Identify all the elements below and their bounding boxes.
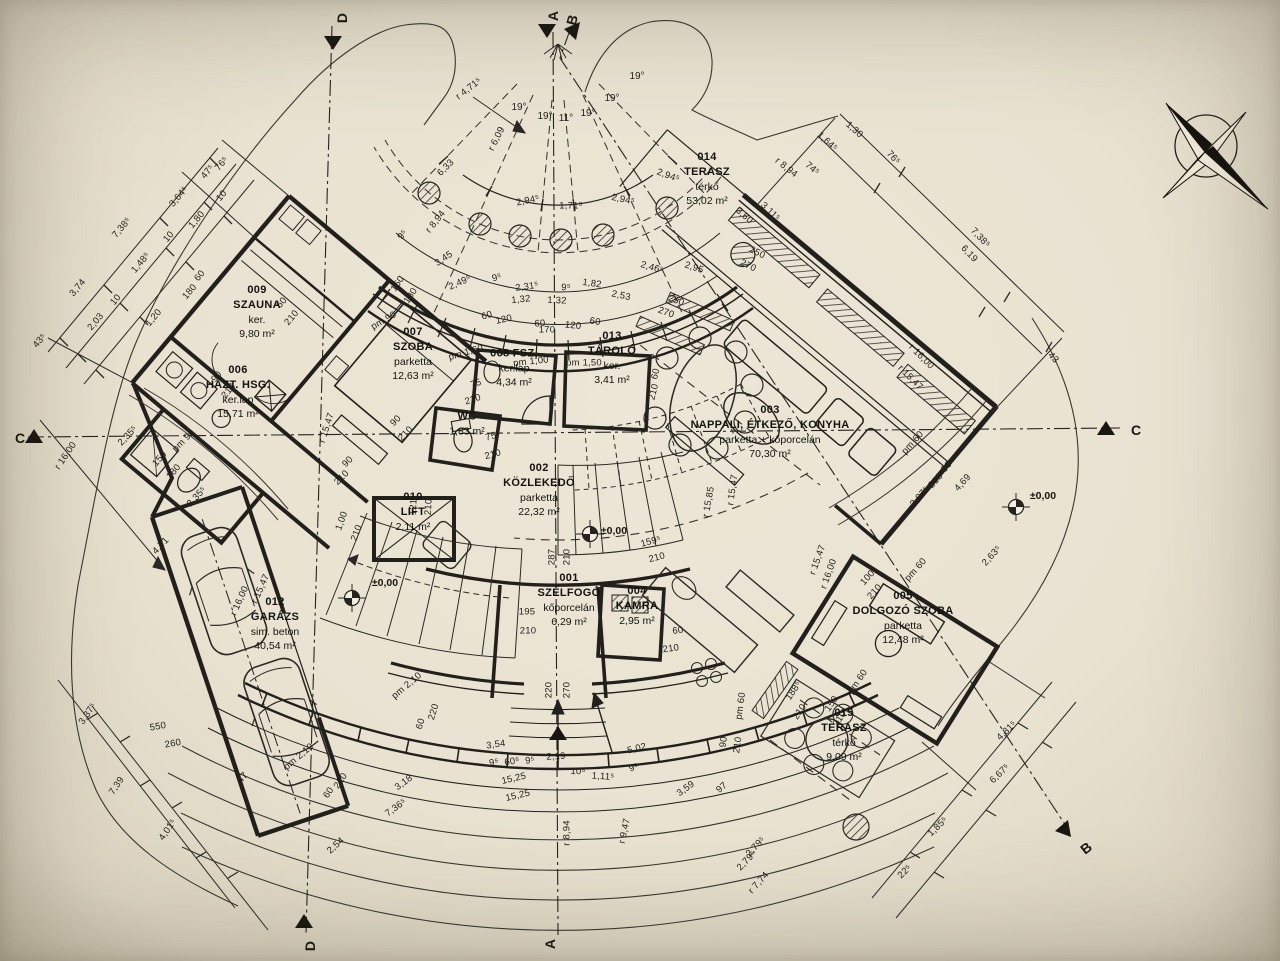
dim-label: 121⁵ — [409, 494, 420, 515]
dim-label: 15,25 — [501, 772, 527, 787]
room-label: 005DOLGOZÓ SZOBAparketta12,48 m² — [852, 589, 953, 647]
room-label-line: parketta — [503, 491, 575, 505]
section-letter: D — [302, 941, 318, 951]
room-label-line: 12,48 m² — [852, 633, 953, 647]
room-label-line: ker. — [233, 313, 281, 327]
angle-label: 11° — [559, 114, 573, 124]
room-label-line: 007 — [392, 325, 433, 340]
dim-label: 210 — [732, 736, 744, 754]
dim-label: 220 — [544, 682, 554, 698]
dim-label: 1,80 — [187, 210, 207, 231]
dim-label: 60 — [193, 269, 207, 284]
room-label: 001SZÉLFOGÓkőporcelán6,29 m² — [538, 571, 601, 629]
dim-label: 250 — [748, 245, 767, 261]
dim-label: 60 — [650, 368, 662, 381]
dim-label: 210 — [333, 469, 351, 487]
dim-label: 2,54 — [326, 836, 347, 856]
dim-label: 2,63⁵ — [981, 544, 1004, 568]
dim-label: r 7,74 — [747, 870, 771, 895]
dim-label: pm 2,10 — [282, 742, 315, 772]
dim-label: 2,49⁵ — [447, 274, 472, 292]
room-label-line: 70,30 m² — [691, 447, 850, 461]
dim-label: 2,94⁵ — [516, 194, 541, 208]
dim-label: r 15,47 — [726, 474, 740, 506]
dim-label: 210 — [484, 448, 502, 461]
room-label-line: SZOBA — [392, 340, 433, 355]
room-label-line: 004 — [616, 584, 658, 599]
section-letter: B — [563, 13, 581, 27]
room-label-line: TERASZ — [684, 165, 730, 180]
dim-label: 220 — [332, 772, 349, 791]
dim-label: 6,67⁵ — [988, 762, 1011, 785]
room-label-line: GARÁZS — [251, 610, 299, 625]
dim-label: 9⁵ — [489, 758, 500, 769]
room-label-line: 22,32 m² — [503, 505, 575, 519]
dim-label: 7,36⁵ — [384, 797, 409, 818]
dim-label: 180 — [181, 283, 199, 302]
dim-label: 210 — [424, 498, 435, 515]
dim-label: pm 60 — [734, 692, 747, 720]
dim-label: r 8,94 — [773, 156, 799, 179]
room-label-line: KÖZLEKEDŐ — [503, 476, 575, 491]
dim-label: 2,03 — [86, 312, 106, 333]
dim-label: 15,25 — [505, 789, 531, 804]
dim-label: 10 — [215, 189, 229, 204]
dim-label: 76⁵ — [884, 149, 901, 167]
room-label-line: 2,95 m² — [616, 614, 658, 628]
dim-label: 7,39 — [108, 775, 127, 796]
dim-label: 1,00 — [334, 510, 350, 531]
dim-label: 1,82 — [582, 278, 602, 290]
dim-label: 75 — [469, 378, 482, 390]
dim-label: 60 — [415, 717, 427, 730]
dim-label: 270 — [562, 682, 572, 698]
dim-label: r 8,94 — [562, 820, 572, 846]
room-label-line: 6,29 m² — [538, 615, 601, 629]
dim-label: 5,02 — [626, 742, 647, 756]
dim-label: 4,01⁵ — [158, 818, 179, 843]
section-letter: C — [15, 430, 25, 446]
room-label-line: KAMRA — [616, 599, 658, 614]
dim-label: pm 60 — [903, 557, 928, 584]
dim-label: 1,30 — [844, 120, 865, 140]
dim-label: 270 — [739, 258, 758, 274]
room-label-line: 009 — [233, 283, 281, 298]
dim-label: 9⁵ — [396, 228, 409, 241]
angle-label: 19° — [580, 109, 595, 119]
room-label: 004KAMRA2,95 m² — [616, 584, 658, 628]
dim-label: 270 — [657, 306, 676, 321]
dim-label: pm 1,50 — [566, 358, 602, 368]
dim-label: 4,69 — [953, 473, 973, 494]
dim-label: 1,32 — [547, 296, 567, 306]
dim-label: 2,35⁵ — [186, 485, 209, 509]
dim-label: 60⁵ — [504, 756, 520, 768]
room-label-line: 1,83 m² — [449, 424, 485, 438]
dim-label: 60 — [589, 316, 601, 327]
room-label-line: 3,41 m² — [588, 373, 636, 387]
room-label: 002KÖZLEKEDŐparketta22,32 m² — [503, 461, 575, 519]
room-label-line: SZÉLFOGÓ — [538, 586, 601, 601]
dim-label: 210 — [464, 393, 483, 407]
dim-label: 180 — [402, 287, 419, 306]
dim-label: pm 60 — [900, 430, 925, 457]
dim-label: r 16,00 — [229, 585, 250, 617]
dim-label: pm 1,60 — [448, 344, 485, 363]
dim-label: r 16,00 — [907, 343, 936, 372]
dim-label: 210 — [791, 703, 808, 722]
room-label-line: 15,71 m² — [206, 407, 270, 421]
room-label-line: 40,54 m² — [251, 639, 299, 653]
dim-label: 2,19 — [546, 752, 566, 762]
dim-label: 3,54 — [486, 739, 506, 751]
dim-label: 120 — [564, 320, 581, 331]
dim-label: 159⁵ — [640, 535, 662, 550]
room-label: WC1,83 m² — [449, 409, 485, 438]
dim-label: 195 — [519, 607, 535, 617]
dim-label: 170 — [539, 325, 555, 335]
room-label-line: térkő — [684, 180, 730, 194]
dim-label: 2,79⁵ — [735, 849, 758, 872]
room-label-line: SZAUNA — [233, 298, 281, 313]
dim-label: 97 — [715, 781, 730, 795]
dim-label: 210 — [350, 524, 365, 543]
room-label-line: 014 — [684, 150, 730, 165]
dim-label: r 8,94 — [424, 209, 447, 235]
dim-label: 7,38⁵ — [969, 226, 992, 250]
dim-label: 260 — [164, 738, 182, 750]
room-label-line: ker.lap — [206, 393, 270, 407]
dim-label: 1,64⁵ — [815, 131, 839, 154]
dim-label: 43⁵ — [32, 332, 49, 350]
dim-label: 22⁵ — [896, 863, 913, 880]
room-label-line: parketta — [392, 355, 433, 369]
angle-label: 19° — [537, 112, 552, 122]
dim-label: 9⁵ — [525, 756, 536, 766]
floor-plan-sheet: 009SZAUNAker.9,80 m²006HÁZT. HSG.ker.lap… — [0, 0, 1280, 961]
dim-label: 210 — [397, 425, 415, 443]
dim-label: 90 — [719, 736, 730, 748]
dim-label: 210 — [520, 626, 536, 636]
labels-layer: 009SZAUNAker.9,80 m²006HÁZT. HSG.ker.lap… — [0, 0, 1280, 961]
dim-label: 2,35⁵ — [117, 424, 140, 448]
dim-label: 150 — [151, 450, 169, 469]
dim-label: 3,11⁵ — [759, 201, 782, 224]
room-label-line: parketta — [852, 619, 953, 633]
dim-label: 90 — [940, 460, 954, 475]
room-label-line: 53,02 m² — [684, 194, 730, 208]
dim-label: 1,85⁵ — [926, 815, 949, 838]
dim-label: 2,46⁵ — [639, 260, 664, 276]
dim-label: 1,71⁵ — [559, 201, 582, 211]
dim-label: 3,60 — [734, 206, 755, 226]
dim-label: 2,95 — [683, 261, 704, 276]
dim-label: 287 — [547, 549, 557, 565]
dim-label: 210 — [927, 472, 945, 491]
elevation-label: ±0,00 — [601, 525, 627, 537]
dim-label: 60 — [480, 310, 493, 322]
angle-label: 19° — [629, 72, 644, 82]
dim-label: 2,31⁵ — [515, 281, 540, 294]
room-label-line: 003 — [691, 403, 850, 418]
dim-label: 1,48⁵ — [130, 251, 152, 275]
room-label-line: NAPPALI, ÉTKEZŐ, KONYHA — [691, 418, 850, 433]
room-label-line: 9,09 m² — [821, 750, 867, 764]
dim-label: 3,18 — [393, 773, 414, 792]
room-label-line: WC — [449, 409, 485, 424]
room-label-line: sim. beton — [251, 625, 299, 639]
dim-label: 188⁵ — [784, 680, 803, 702]
section-letter: D — [334, 13, 350, 23]
dim-label: 2,07⁵ — [909, 485, 932, 509]
dim-label: 9⁵ — [628, 762, 640, 774]
elevation-label: ±0,00 — [1030, 490, 1056, 502]
dim-label: 4,71 — [151, 536, 171, 557]
dim-label: 210 — [562, 549, 572, 565]
dim-label: 550 — [149, 721, 167, 733]
section-letter: A — [545, 11, 561, 21]
room-label-line: 9,80 m² — [233, 327, 281, 341]
dim-label: 10⁵ — [570, 767, 585, 777]
dim-label: 75 — [484, 431, 497, 443]
dim-label: 60 — [672, 626, 684, 637]
dim-label: 3,59 — [675, 779, 696, 798]
elevation-label: ±0,00 — [372, 577, 398, 589]
dim-label: 9⁵ — [561, 283, 571, 293]
room-label: 014TERASZtérkő53,02 m² — [684, 150, 730, 208]
dim-label: 90 — [389, 414, 403, 428]
dim-label: pm 60 — [846, 668, 869, 696]
dim-label: r 15,85 — [702, 486, 717, 518]
dim-label: 3,64⁵ — [168, 185, 190, 209]
dim-label: 9⁵ — [491, 272, 503, 284]
dim-label: 250 — [667, 294, 686, 309]
dim-label: 3,74 — [68, 278, 88, 299]
angle-label: 19° — [604, 94, 619, 104]
room-label-line: 001 — [538, 571, 601, 586]
dim-label: r 6,09 — [487, 125, 507, 152]
room-label-line: parketta + kőporcelán — [691, 433, 850, 447]
room-label-line: 002 — [503, 461, 575, 476]
dim-label: r 16,00 — [53, 441, 78, 472]
dim-label: 220 — [427, 703, 441, 722]
room-label-line: 4,34 m² — [490, 375, 538, 389]
room-label: 007SZOBAparketta12,63 m² — [392, 325, 433, 383]
room-label-line: TERASZ — [821, 721, 867, 736]
dim-label: r 4,71⁵ — [454, 76, 483, 102]
dim-label: 43 — [1046, 351, 1060, 366]
room-label-line: 12,63 m² — [392, 369, 433, 383]
dim-label: 47 — [236, 771, 250, 786]
room-label-line: 2,11 m² — [396, 520, 431, 534]
section-letter: C — [1131, 422, 1141, 438]
dim-label: 2,94⁵ — [655, 168, 680, 185]
dim-label: 1,20 — [144, 308, 164, 329]
dim-label: pm 90 — [171, 428, 197, 454]
dim-label: 1,32 — [511, 294, 531, 305]
dim-label: 2,53 — [611, 289, 632, 302]
dim-label: r 15,47 — [318, 412, 337, 444]
section-letter: B — [1077, 839, 1095, 858]
dim-label: 120 — [495, 314, 513, 327]
section-letter: A — [542, 939, 558, 949]
dim-label: r 9,47 — [618, 818, 633, 845]
dim-label: 60 — [322, 786, 336, 800]
dim-label: 6,19 — [959, 244, 979, 265]
room-label-line: DOLGOZÓ SZOBA — [852, 604, 953, 619]
dim-label: 6,33 — [436, 158, 456, 178]
dim-label: 10 — [109, 293, 123, 308]
dim-label: 150 — [389, 275, 406, 294]
dim-label: 210 — [662, 643, 680, 655]
dim-label: 210 — [648, 551, 666, 564]
dim-label: 210 — [283, 309, 301, 328]
room-label-line: 013 — [588, 329, 636, 344]
dim-label: 210 — [647, 383, 660, 401]
dim-label: r 15,47 — [896, 364, 925, 393]
room-label-line: kőporcelán — [538, 601, 601, 615]
dim-label: 4,81⁵ — [995, 719, 1018, 742]
dim-label: 2,94⁵ — [611, 193, 636, 207]
dim-label: 10 — [162, 230, 176, 245]
dim-label: 7,38⁵ — [111, 216, 133, 240]
dim-label: 180 — [165, 463, 183, 482]
dim-label: 3,45 — [433, 250, 454, 269]
dim-label: pm 2,10 — [390, 671, 423, 701]
room-label: 003NAPPALI, ÉTKEZŐ, KONYHAparketta + kőp… — [691, 403, 850, 461]
dim-label: 1,11⁵ — [591, 771, 614, 782]
room-label: 009SZAUNAker.9,80 m² — [233, 283, 281, 341]
dim-label: 74⁵ — [803, 161, 821, 178]
room-label-line: térkő — [821, 736, 867, 750]
angle-label: 19° — [511, 103, 526, 113]
dim-label: pm 1,00 — [513, 355, 550, 368]
dim-label: 3,37⁵ — [78, 702, 99, 727]
